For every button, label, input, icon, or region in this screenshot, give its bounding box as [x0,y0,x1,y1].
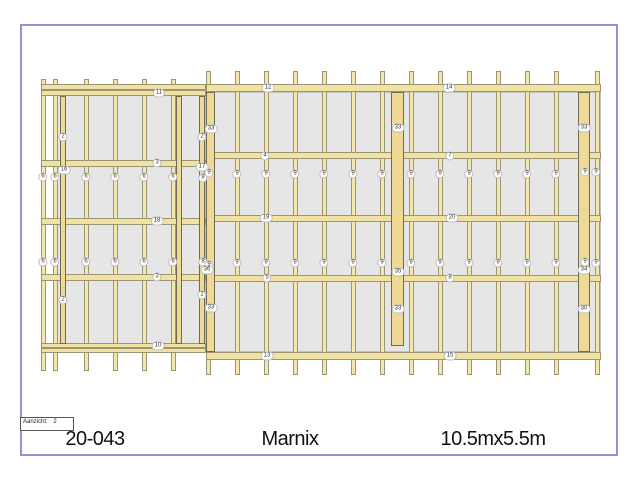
stud [438,71,443,375]
part-number-label: 36 [201,266,214,275]
stud [41,79,46,371]
stud [595,71,600,375]
part-number-label: 11 [153,89,165,98]
stud [113,79,118,371]
part-number-label: 33 [205,304,218,313]
project-code: 20-043 [45,428,145,451]
stud [322,71,327,375]
part-number-label: 10 [152,342,165,351]
stud [554,71,559,375]
part-number-label: 33 [205,125,218,134]
stud [235,71,240,375]
project-name: Marnix [240,428,340,451]
part-number-label: 19 [260,214,273,223]
stud [525,71,530,375]
part-number-label: 33 [392,305,405,314]
stud [53,79,58,371]
stud [409,71,414,375]
part-number-label: 13 [261,352,274,361]
part-number-label: 12 [262,84,275,93]
stud [84,79,89,371]
stud [293,71,298,375]
part-number-label: 15 [444,352,457,361]
stud [496,71,501,375]
project-size: 10.5mx5.5m [433,428,553,451]
stud [351,71,356,375]
part-number-label: 18 [151,217,164,226]
stud [264,71,269,375]
stud [142,79,147,371]
view-indicator-value: 2 [53,419,56,425]
part-number-label: 14 [443,84,456,93]
rail [41,348,206,353]
part-number-label: 33 [392,124,405,133]
part-number-label: 30 [578,305,591,314]
part-number-label: 34 [578,266,591,275]
part-number-label: 20 [446,214,459,223]
drawing-window: 1112143183104719205813156666666666662162… [0,0,640,480]
view-indicator-label: Aanzicht: [23,419,48,425]
part-number-label: 33 [578,124,591,133]
part-number-label: 16 [58,166,71,175]
post [176,96,182,344]
part-number-label: 35 [392,268,405,277]
stud [380,71,385,375]
stud [467,71,472,375]
